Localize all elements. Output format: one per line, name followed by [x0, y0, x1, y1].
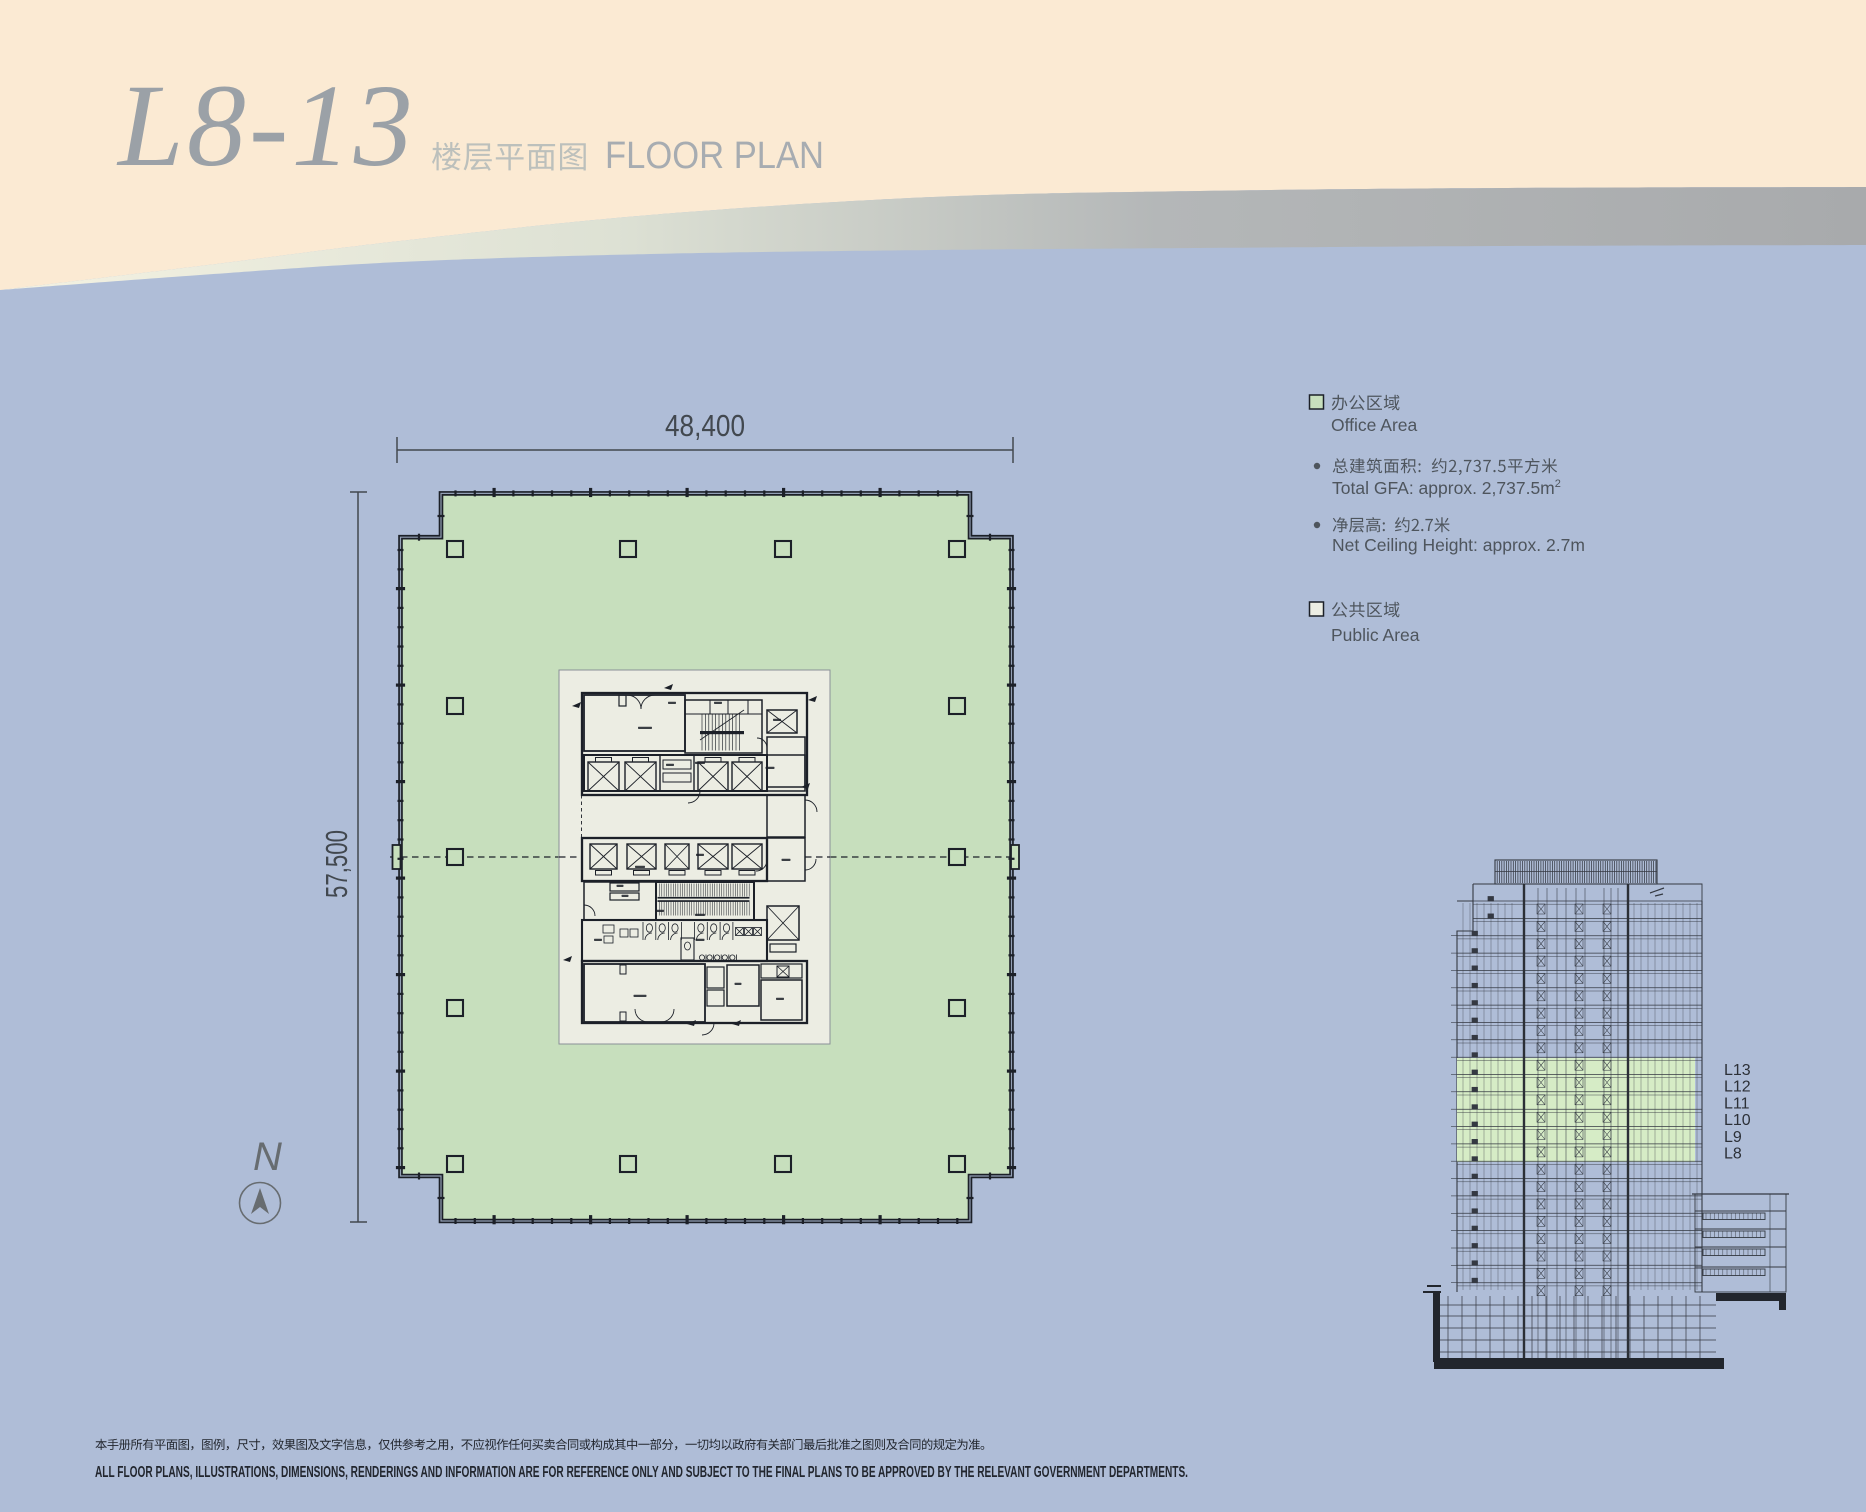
- svg-text:L9: L9: [1724, 1129, 1742, 1146]
- svg-text:Public Area: Public Area: [1331, 625, 1420, 645]
- svg-text:L13: L13: [1724, 1062, 1751, 1079]
- svg-text:Total GFA: approx. 2,737.5m2: Total GFA: approx. 2,737.5m2: [1332, 478, 1561, 498]
- svg-text:N: N: [253, 1135, 282, 1179]
- svg-text:L8: L8: [1724, 1146, 1742, 1163]
- svg-text:L10: L10: [1724, 1112, 1751, 1129]
- svg-text:L11: L11: [1724, 1095, 1750, 1112]
- svg-text:ALL FLOOR PLANS, ILLUSTRATIONS: ALL FLOOR PLANS, ILLUSTRATIONS, DIMENSIO…: [95, 1464, 1188, 1481]
- svg-text:48,400: 48,400: [665, 408, 745, 443]
- svg-text:57,500: 57,500: [319, 830, 354, 898]
- svg-text:L8-13: L8-13: [116, 60, 416, 191]
- svg-text:Office Area: Office Area: [1331, 415, 1418, 435]
- svg-text:FLOOR PLAN: FLOOR PLAN: [605, 135, 824, 177]
- svg-text:Net Ceiling Height: approx. 2.: Net Ceiling Height: approx. 2.7m: [1332, 535, 1585, 555]
- svg-text:L12: L12: [1724, 1079, 1751, 1096]
